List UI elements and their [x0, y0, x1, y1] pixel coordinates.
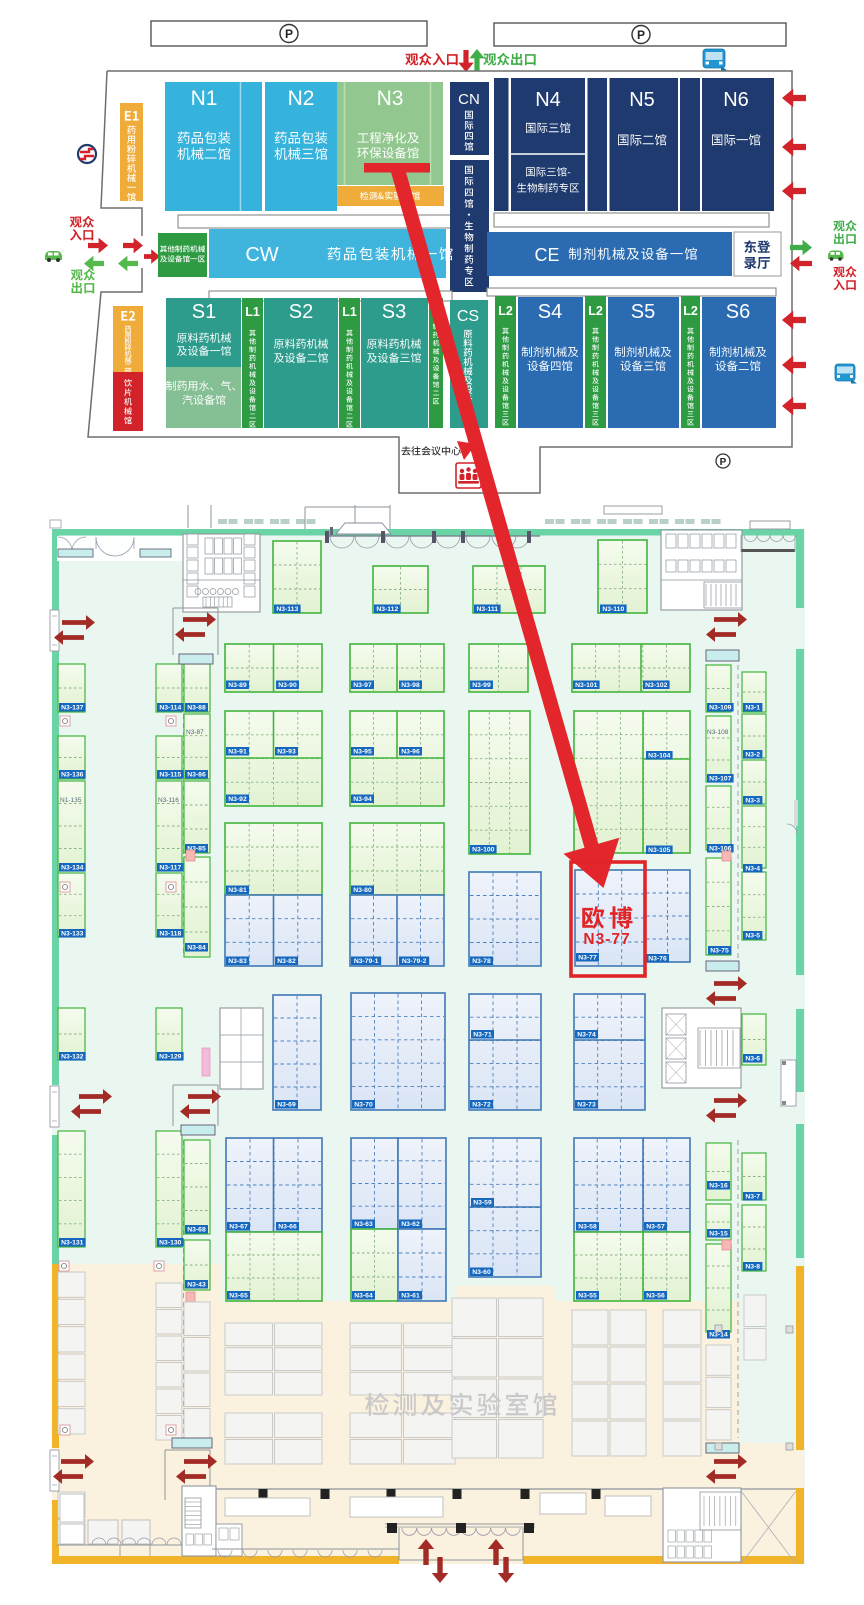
- svg-text:N3-66: N3-66: [278, 1224, 297, 1231]
- svg-text:N1-135: N1-135: [60, 797, 82, 804]
- svg-text:N3-2: N3-2: [745, 752, 760, 759]
- svg-text:N3-69: N3-69: [277, 1102, 296, 1109]
- svg-text:P: P: [720, 457, 727, 468]
- svg-text:S1: S1: [192, 301, 216, 323]
- svg-text:N3-61: N3-61: [401, 1293, 420, 1300]
- svg-text:N3-113: N3-113: [276, 606, 298, 613]
- svg-text:N3-93: N3-93: [277, 749, 296, 756]
- svg-text:N3-87: N3-87: [186, 729, 204, 736]
- svg-text:N3-84: N3-84: [187, 945, 206, 952]
- svg-text:N3-97: N3-97: [353, 682, 372, 689]
- svg-text:L2: L2: [588, 304, 603, 318]
- svg-text:N3-112: N3-112: [376, 606, 398, 613]
- svg-text:N3-79-2: N3-79-2: [402, 958, 427, 965]
- svg-text:N3-99: N3-99: [472, 682, 491, 689]
- svg-text:N3-130: N3-130: [159, 1240, 182, 1247]
- svg-text:N3-6: N3-6: [745, 1056, 760, 1063]
- svg-text:N3-89: N3-89: [228, 682, 247, 689]
- svg-text:N3-115: N3-115: [159, 772, 181, 779]
- svg-text:N3-136: N3-136: [61, 772, 84, 779]
- svg-text:N3-1: N3-1: [745, 705, 760, 712]
- svg-text:N3-110: N3-110: [602, 606, 624, 613]
- svg-text:N3-3: N3-3: [745, 798, 760, 805]
- svg-text:N3-55: N3-55: [578, 1293, 597, 1300]
- svg-text:N3-14: N3-14: [709, 1332, 728, 1339]
- svg-text:S4: S4: [538, 301, 562, 323]
- svg-text:P: P: [637, 28, 645, 42]
- svg-text:N3-116: N3-116: [158, 797, 179, 804]
- svg-text:N3-88: N3-88: [187, 705, 206, 712]
- svg-text:N3-132: N3-132: [61, 1054, 84, 1061]
- svg-text:N3-57: N3-57: [646, 1224, 665, 1231]
- svg-text:N3-133: N3-133: [61, 931, 84, 938]
- svg-text:N3-91: N3-91: [228, 749, 247, 756]
- svg-text:CW: CW: [245, 244, 278, 266]
- svg-text:N3-73: N3-73: [577, 1102, 596, 1109]
- svg-text:N3-94: N3-94: [353, 796, 372, 803]
- svg-text:N5: N5: [629, 89, 655, 111]
- svg-text:N3-101: N3-101: [575, 682, 598, 689]
- svg-text:N3-95: N3-95: [353, 749, 372, 756]
- svg-text:L2: L2: [498, 304, 513, 318]
- svg-text:L1: L1: [245, 305, 260, 319]
- svg-text:N3-43: N3-43: [187, 1282, 206, 1289]
- svg-text:N3-72: N3-72: [472, 1102, 491, 1109]
- svg-text:N3-129: N3-129: [159, 1054, 182, 1061]
- svg-text:N3-105: N3-105: [648, 847, 671, 854]
- svg-text:N3-5: N3-5: [745, 933, 760, 940]
- svg-text:N3-16: N3-16: [709, 1183, 728, 1190]
- svg-text:N3-118: N3-118: [159, 931, 181, 938]
- svg-text:N3-8: N3-8: [745, 1264, 760, 1271]
- svg-text:N3-134: N3-134: [61, 865, 84, 872]
- svg-text:N3-59: N3-59: [473, 1200, 492, 1207]
- svg-text:CE: CE: [534, 245, 559, 265]
- svg-text:N3-4: N3-4: [745, 866, 760, 873]
- svg-text:N3-80: N3-80: [353, 887, 372, 894]
- svg-text:N3-7: N3-7: [745, 1194, 760, 1201]
- svg-text:N3-65: N3-65: [229, 1293, 248, 1300]
- svg-text:N3-75: N3-75: [710, 948, 729, 955]
- svg-text:N3-71: N3-71: [473, 1032, 492, 1039]
- svg-text:N3-114: N3-114: [159, 705, 181, 712]
- svg-text:S2: S2: [289, 301, 313, 323]
- svg-text:N3-131: N3-131: [61, 1240, 84, 1247]
- svg-text:N3-77: N3-77: [583, 931, 630, 948]
- svg-text:N6: N6: [723, 89, 749, 111]
- svg-text:N3-83: N3-83: [228, 958, 247, 965]
- svg-text:N3-68: N3-68: [187, 1227, 206, 1234]
- svg-text:N3-74: N3-74: [577, 1032, 596, 1039]
- svg-text:N3-64: N3-64: [354, 1293, 373, 1300]
- svg-text:S5: S5: [631, 301, 655, 323]
- svg-text:N3-98: N3-98: [401, 682, 420, 689]
- svg-text:N3-70: N3-70: [354, 1102, 373, 1109]
- svg-text:N3-90: N3-90: [278, 682, 297, 689]
- svg-text:N3-67: N3-67: [229, 1224, 248, 1231]
- svg-text:N3-96: N3-96: [401, 749, 420, 756]
- svg-text:S3: S3: [382, 301, 406, 323]
- svg-text:CN: CN: [458, 91, 480, 108]
- svg-text:N3-102: N3-102: [645, 682, 668, 689]
- svg-text:N3-81: N3-81: [228, 887, 247, 894]
- svg-text:P: P: [285, 27, 293, 41]
- svg-text:N3-107: N3-107: [709, 776, 732, 783]
- svg-text:N3-92: N3-92: [228, 796, 247, 803]
- svg-text:N3-62: N3-62: [401, 1221, 420, 1228]
- svg-text:N3-60: N3-60: [472, 1269, 491, 1276]
- svg-text:N4: N4: [535, 89, 561, 111]
- svg-text:N3-100: N3-100: [472, 847, 495, 854]
- svg-text:N3-137: N3-137: [61, 705, 84, 712]
- svg-text:N3-109: N3-109: [709, 705, 732, 712]
- svg-text:N3-79-1: N3-79-1: [354, 958, 379, 965]
- svg-text:N3-82: N3-82: [277, 958, 296, 965]
- svg-text:N2: N2: [288, 87, 315, 110]
- svg-text:N3: N3: [377, 87, 404, 110]
- svg-text:N3-15: N3-15: [709, 1231, 728, 1238]
- svg-text:L2: L2: [683, 304, 698, 318]
- svg-text:N3-117: N3-117: [159, 865, 181, 872]
- svg-text:L1: L1: [342, 305, 357, 319]
- svg-text:N3-111: N3-111: [477, 606, 499, 613]
- svg-text:N1: N1: [191, 87, 218, 110]
- svg-text:N3-104: N3-104: [648, 753, 671, 760]
- svg-text:N3-56: N3-56: [646, 1293, 665, 1300]
- svg-text:N3-63: N3-63: [354, 1221, 373, 1228]
- svg-text:N3-78: N3-78: [472, 958, 491, 965]
- svg-text:S6: S6: [726, 301, 750, 323]
- svg-text:N3-58: N3-58: [578, 1224, 597, 1231]
- svg-text:N3-76: N3-76: [648, 956, 667, 963]
- svg-text:N3-86: N3-86: [187, 772, 206, 779]
- svg-text:N3-108: N3-108: [707, 729, 729, 736]
- svg-text:CS: CS: [457, 308, 479, 325]
- svg-text:N3-77: N3-77: [578, 955, 597, 962]
